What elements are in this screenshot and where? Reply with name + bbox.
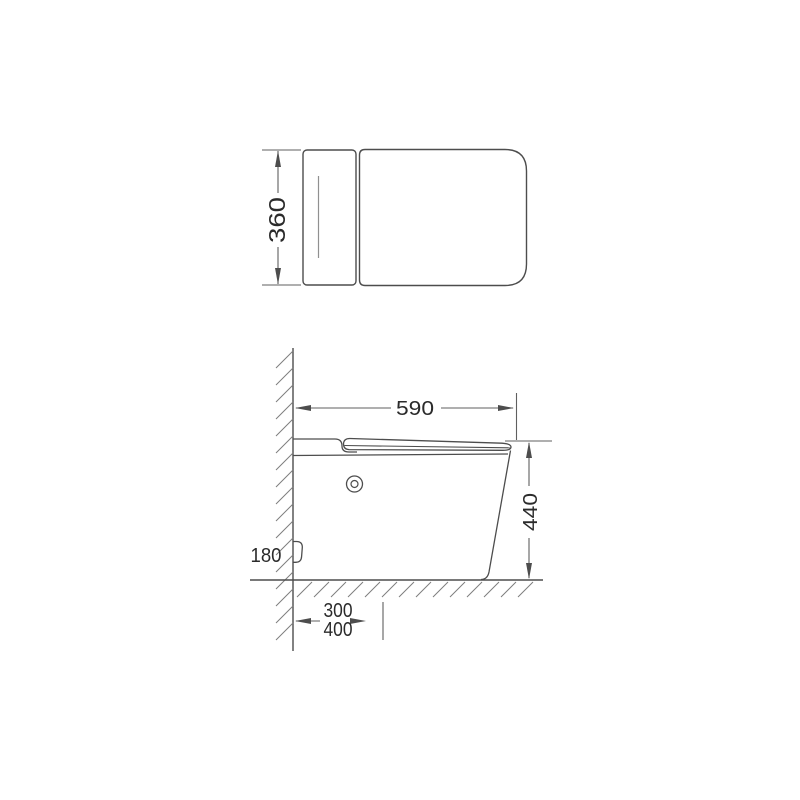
- toilet-body-side: [293, 438, 511, 579]
- side-view: 590 440 180 300 400: [250, 348, 552, 651]
- arrow-left-icon: [295, 405, 311, 411]
- body-front-slope-line: [481, 451, 511, 580]
- dimension-360: 360: [262, 150, 301, 285]
- wall-hatch: [276, 351, 293, 640]
- seat-lid-top-outline: [360, 150, 527, 286]
- body-top-line: [293, 454, 508, 456]
- flush-button-outer-icon: [347, 476, 363, 492]
- arrow-up-icon: [275, 151, 281, 168]
- arrow-down-icon: [526, 563, 532, 579]
- dimension-300-400: 300 400: [295, 600, 383, 641]
- seat-lid-side-outline: [344, 438, 512, 450]
- arrow-up-icon: [526, 442, 532, 458]
- dimension-440-label: 440: [520, 493, 542, 531]
- arrow-right-icon: [498, 405, 514, 411]
- wall-outlet-notch: [293, 542, 302, 563]
- dimension-590-label: 590: [396, 398, 434, 420]
- floor-hatch: [297, 582, 533, 597]
- arrow-left-icon: [295, 618, 311, 624]
- flush-button-inner-icon: [351, 481, 358, 488]
- technical-drawing-canvas: 360: [0, 0, 800, 800]
- arrow-down-icon: [275, 268, 281, 285]
- toilet-dimension-drawing: 360: [0, 0, 800, 800]
- tank-top-outline: [303, 150, 356, 285]
- dimension-360-label: 360: [264, 197, 290, 243]
- dimension-590: 590: [295, 393, 517, 440]
- dimension-440: 440: [505, 441, 552, 579]
- outlet-height-180-label: 180: [251, 545, 282, 567]
- floor-offset-400-label: 400: [324, 619, 353, 641]
- top-view: 360: [262, 150, 527, 286]
